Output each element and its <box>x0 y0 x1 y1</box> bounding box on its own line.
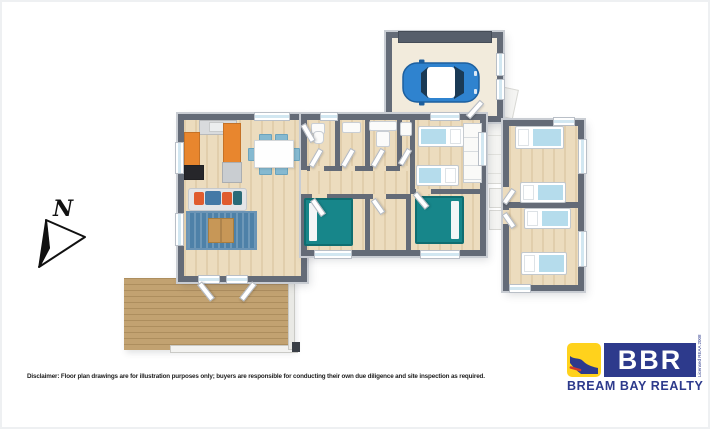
pillow <box>518 129 529 146</box>
sofa-cushion-orange <box>222 192 232 205</box>
kitchen-counter-orange <box>184 132 200 167</box>
window <box>578 139 587 174</box>
kitchen-island-orange <box>223 123 241 164</box>
pillow <box>445 168 456 183</box>
single-bed <box>515 126 564 149</box>
pillow <box>450 129 461 144</box>
window <box>314 250 352 259</box>
laundry-bench <box>369 121 397 131</box>
interior-wall <box>365 194 370 256</box>
floor-plan-page: N Disclaimer: Floor plan drawings are fo… <box>0 0 710 429</box>
logo-acronym: BBR <box>604 343 696 377</box>
window <box>430 112 460 121</box>
deck-post <box>292 342 300 352</box>
window <box>509 284 531 293</box>
washing-machine <box>376 131 390 147</box>
kitchen-counter-black <box>184 165 204 180</box>
single-bed <box>520 182 566 203</box>
french-door <box>226 275 248 284</box>
single-bed <box>418 126 464 147</box>
sleepout-step-2 <box>489 210 504 230</box>
logo-row: BBR Licensed REAA 2008 <box>567 343 707 377</box>
sofa-cushion-orange <box>194 192 204 205</box>
pillow <box>524 255 535 272</box>
sleepout-step-1 <box>489 188 504 208</box>
pillow <box>527 211 538 226</box>
window <box>320 112 338 121</box>
toilet <box>400 122 412 136</box>
double-bed <box>304 198 353 246</box>
logo-name: BREAM BAY REALTY <box>567 379 707 393</box>
disclaimer-text: Disclaimer: Floor plan drawings are for … <box>27 373 485 380</box>
single-bed <box>524 208 571 229</box>
bed-cover <box>539 255 564 272</box>
dining-table <box>254 140 294 168</box>
brand-logo: BBR Licensed REAA 2008 BREAM BAY REALTY <box>567 343 707 395</box>
window <box>478 132 487 166</box>
deck <box>124 278 294 350</box>
bed-cover <box>542 211 568 226</box>
single-bed <box>416 165 459 186</box>
toilet-bowl <box>313 131 324 144</box>
window <box>420 250 460 259</box>
interior-wall <box>335 120 340 170</box>
bed-cover <box>533 129 561 146</box>
north-arrow-icon <box>36 215 88 273</box>
single-bed <box>521 252 567 275</box>
window <box>175 142 184 174</box>
window <box>254 112 290 121</box>
vanity <box>342 122 361 133</box>
window <box>175 213 184 246</box>
coffee-table <box>208 218 234 243</box>
deck-railing <box>170 345 298 353</box>
interior-wall <box>406 194 411 256</box>
bed-cover <box>419 168 441 183</box>
garage-door <box>398 31 492 43</box>
kitchen-sink <box>209 122 224 132</box>
pillow <box>523 185 534 200</box>
fridge <box>222 162 242 183</box>
door-opening <box>400 166 410 171</box>
window <box>578 231 587 267</box>
car-top-view-icon <box>401 59 481 106</box>
deck-railing-side <box>288 280 295 350</box>
hall-opening <box>301 170 307 194</box>
bed-cover <box>538 185 563 200</box>
window <box>496 53 505 76</box>
window <box>553 117 575 126</box>
sofa-cushion-blue <box>205 191 221 205</box>
sofa-cushion-teal <box>233 191 242 205</box>
window <box>496 79 505 100</box>
logo-license-text: Licensed REAA 2008 <box>697 343 702 377</box>
pillow <box>451 201 459 239</box>
bed-cover <box>421 129 446 144</box>
logo-bay-icon <box>567 343 601 377</box>
